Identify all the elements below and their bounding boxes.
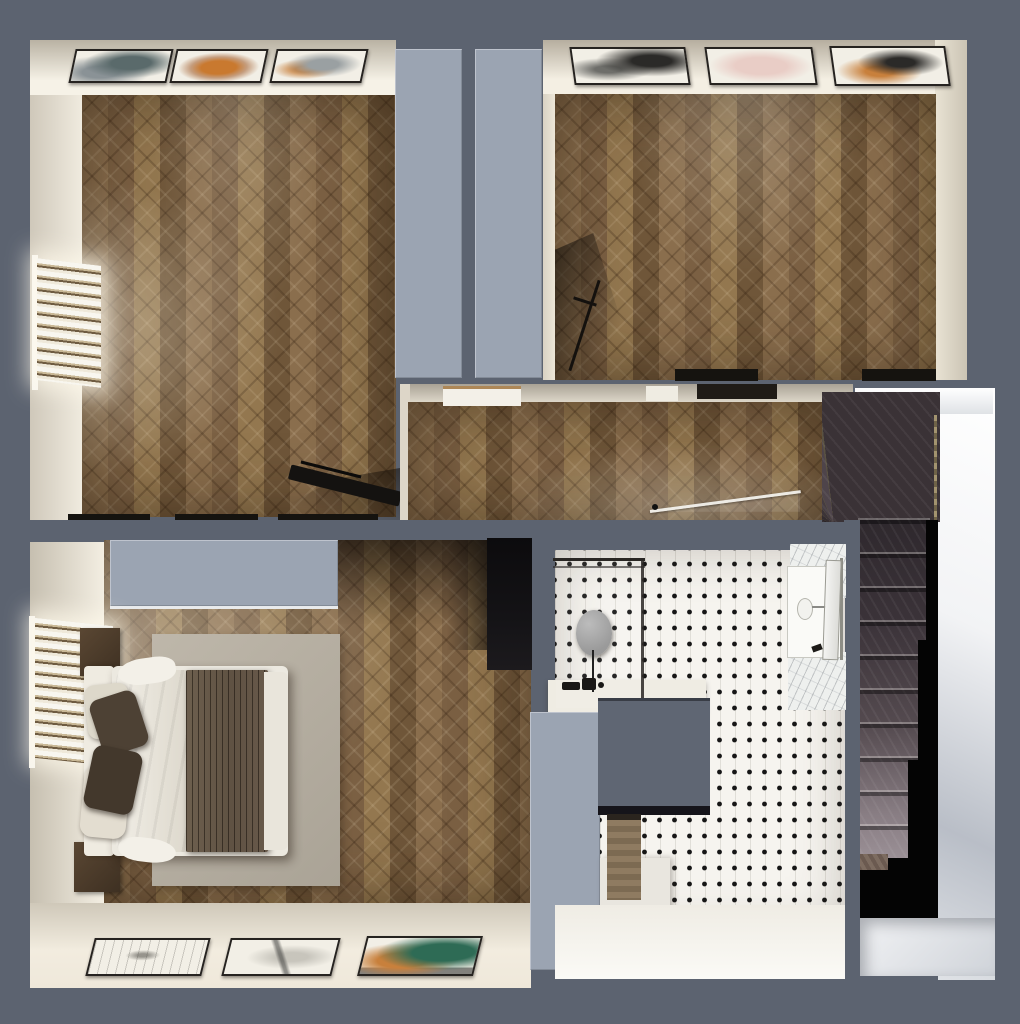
door-handle — [652, 504, 658, 510]
room-b-right-wall — [935, 40, 967, 380]
wood-cabinet — [607, 814, 641, 900]
bathroom — [530, 520, 860, 990]
wall-block — [598, 698, 710, 810]
door-threshold-dark — [697, 384, 777, 399]
door-opening — [443, 386, 521, 406]
wall-art-frame — [85, 938, 210, 976]
wall-art-frame — [269, 49, 368, 83]
shower-rail — [553, 558, 645, 561]
wall-art-frame — [357, 936, 483, 976]
brown-throw-blanket — [186, 670, 268, 852]
dark-wardrobe — [487, 538, 532, 670]
bathroom-bottom-strip — [555, 905, 845, 979]
bedroom — [0, 522, 545, 1024]
stair-landing — [856, 918, 995, 976]
black-faucet-knob — [598, 682, 604, 688]
wall-art-frame — [68, 49, 173, 83]
bed-foot-bar — [264, 672, 288, 850]
door-opening — [646, 386, 678, 401]
wall-column — [475, 49, 542, 378]
black-faucet-set — [582, 678, 596, 690]
stairwell-void — [918, 640, 938, 760]
room-top-right — [540, 0, 970, 390]
hallway — [398, 382, 858, 524]
wall-art-frame — [221, 938, 340, 976]
marble-counter — [788, 652, 846, 710]
wall-art-frame — [704, 47, 817, 85]
shower-glass-panel — [641, 558, 644, 708]
floor-plan-render — [0, 0, 1020, 1024]
shower-rail — [553, 566, 645, 568]
door-threshold — [862, 369, 936, 381]
door-threshold — [675, 369, 758, 381]
wall-art-frame — [569, 47, 690, 85]
round-mirror — [576, 610, 612, 656]
wall-column — [395, 49, 462, 378]
wall-art-frame — [829, 46, 951, 86]
bottom-wall-band — [0, 988, 1020, 1024]
room-a-floor-light — [82, 95, 396, 517]
stairwell-wall-white — [938, 388, 995, 980]
stairwell-void — [908, 760, 938, 865]
closet-top — [110, 540, 338, 609]
wall-art-frame — [169, 49, 268, 83]
window-blinds-radiator — [37, 258, 101, 388]
sink-basin — [797, 598, 813, 620]
winder-steps — [822, 392, 940, 522]
last-step-fragment — [858, 854, 888, 870]
wardrobe-shadow — [447, 540, 489, 650]
black-faucet-set — [562, 682, 580, 690]
